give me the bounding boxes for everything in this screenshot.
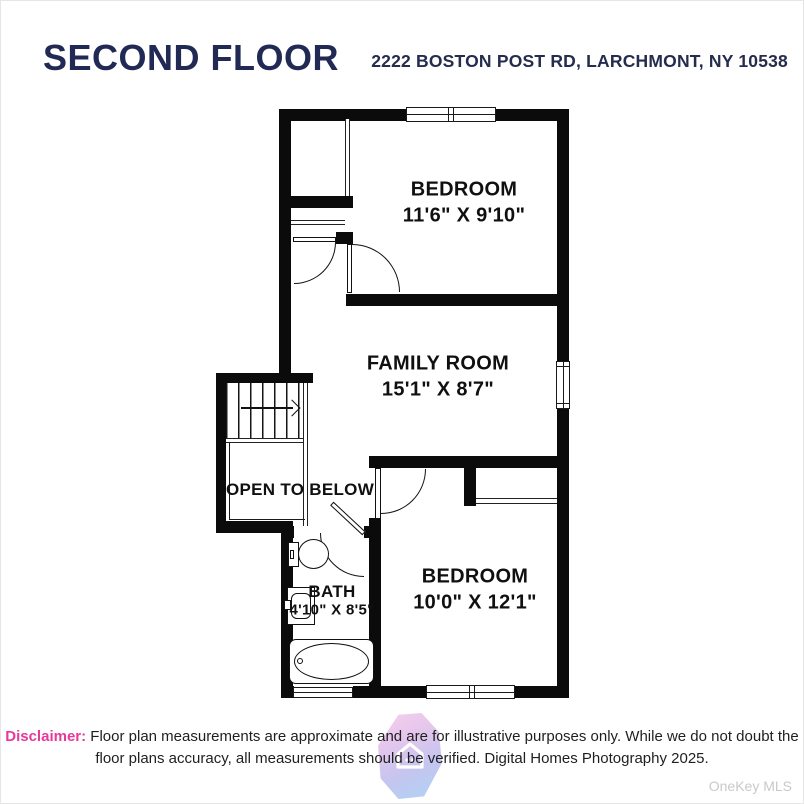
- room-label-family-dims: 15'1" X 8'7": [382, 379, 494, 402]
- wall-stairwing-left: [216, 373, 226, 533]
- bedroom1-door-swing: [352, 244, 400, 292]
- room-label-family-name: FAMILY ROOM: [367, 353, 509, 376]
- window-sill: [557, 403, 569, 404]
- bedroom2-closet-slider: [476, 498, 557, 504]
- disclaimer-label: Disclaimer:: [5, 728, 86, 745]
- mls-watermark: OneKey MLS: [709, 778, 792, 794]
- room-label-bedroom2-name: BEDROOM: [422, 566, 529, 589]
- bedroom2-door-swing: [381, 469, 426, 514]
- wall-bottom-2: [353, 686, 426, 698]
- wall-bottom-3: [514, 686, 569, 698]
- room-label-bath-dims: 4'10" X 8'5": [289, 602, 374, 619]
- page-title: SECOND FLOOR: [43, 37, 339, 79]
- wall-bath-top-left: [281, 526, 294, 538]
- wall-closet-divider: [279, 196, 353, 208]
- stairs-bottom-edge: [226, 438, 304, 443]
- toilet-button: [290, 550, 294, 559]
- open-below-inset-bottom: [229, 519, 305, 520]
- property-address: 2222 BOSTON POST RD, LARCHMONT, NY 10538: [371, 51, 788, 72]
- room-label-bedroom1-name: BEDROOM: [411, 179, 518, 202]
- floorplan-page: SECOND FLOOR 2222 BOSTON POST RD, LARCHM…: [0, 0, 804, 804]
- window-family-right: [556, 361, 570, 409]
- window-glass-line: [427, 692, 514, 693]
- room-label-bath-name: BATH: [308, 582, 355, 602]
- window-glass-line: [294, 692, 352, 693]
- bathtub-faucet: [297, 658, 303, 664]
- window-bedroom2-bottom: [426, 685, 515, 699]
- window-mullion: [474, 686, 475, 698]
- room-label-bedroom1-dims: 11'6" X 9'10": [403, 205, 525, 228]
- closet-door-swing: [294, 242, 336, 284]
- disclaimer-line1: Floor plan measurements are approximate …: [90, 728, 798, 745]
- bath-door-leaf: [330, 502, 366, 536]
- wall-bedroom2-closet-stub: [464, 468, 476, 506]
- wall-family-bedroom2: [369, 456, 569, 468]
- toilet-bowl: [298, 539, 329, 569]
- window-bath-bottom: [293, 687, 353, 698]
- wall-right-upper: [557, 109, 569, 361]
- disclaimer: Disclaimer: Floor plan measurements are …: [1, 728, 803, 745]
- window-sill: [557, 366, 569, 367]
- disclaimer-line2: floor plans accuracy, all measurements s…: [1, 750, 803, 767]
- wall-top-left: [279, 109, 406, 121]
- wall-left-upper: [279, 109, 291, 383]
- window-bedroom1-top: [406, 107, 496, 122]
- wall-stairwing-top: [216, 373, 313, 383]
- window-mullion: [453, 108, 454, 121]
- bathtub-basin: [294, 643, 369, 680]
- wall-right-lower: [557, 409, 569, 698]
- window-glass-line: [407, 114, 495, 115]
- closet-sliding-door: [291, 220, 345, 225]
- window-mullion: [448, 108, 449, 121]
- window-glass-line: [563, 362, 564, 408]
- wall-bedroom1-south: [346, 294, 569, 306]
- wall-closet-door-stub: [336, 232, 353, 244]
- room-label-open-to-below: OPEN TO BELOW: [226, 480, 374, 500]
- thin-wall-bedroom1-west: [345, 119, 350, 196]
- window-mullion: [469, 686, 470, 698]
- room-label-bedroom2-dims: 10'0" X 12'1": [413, 592, 537, 615]
